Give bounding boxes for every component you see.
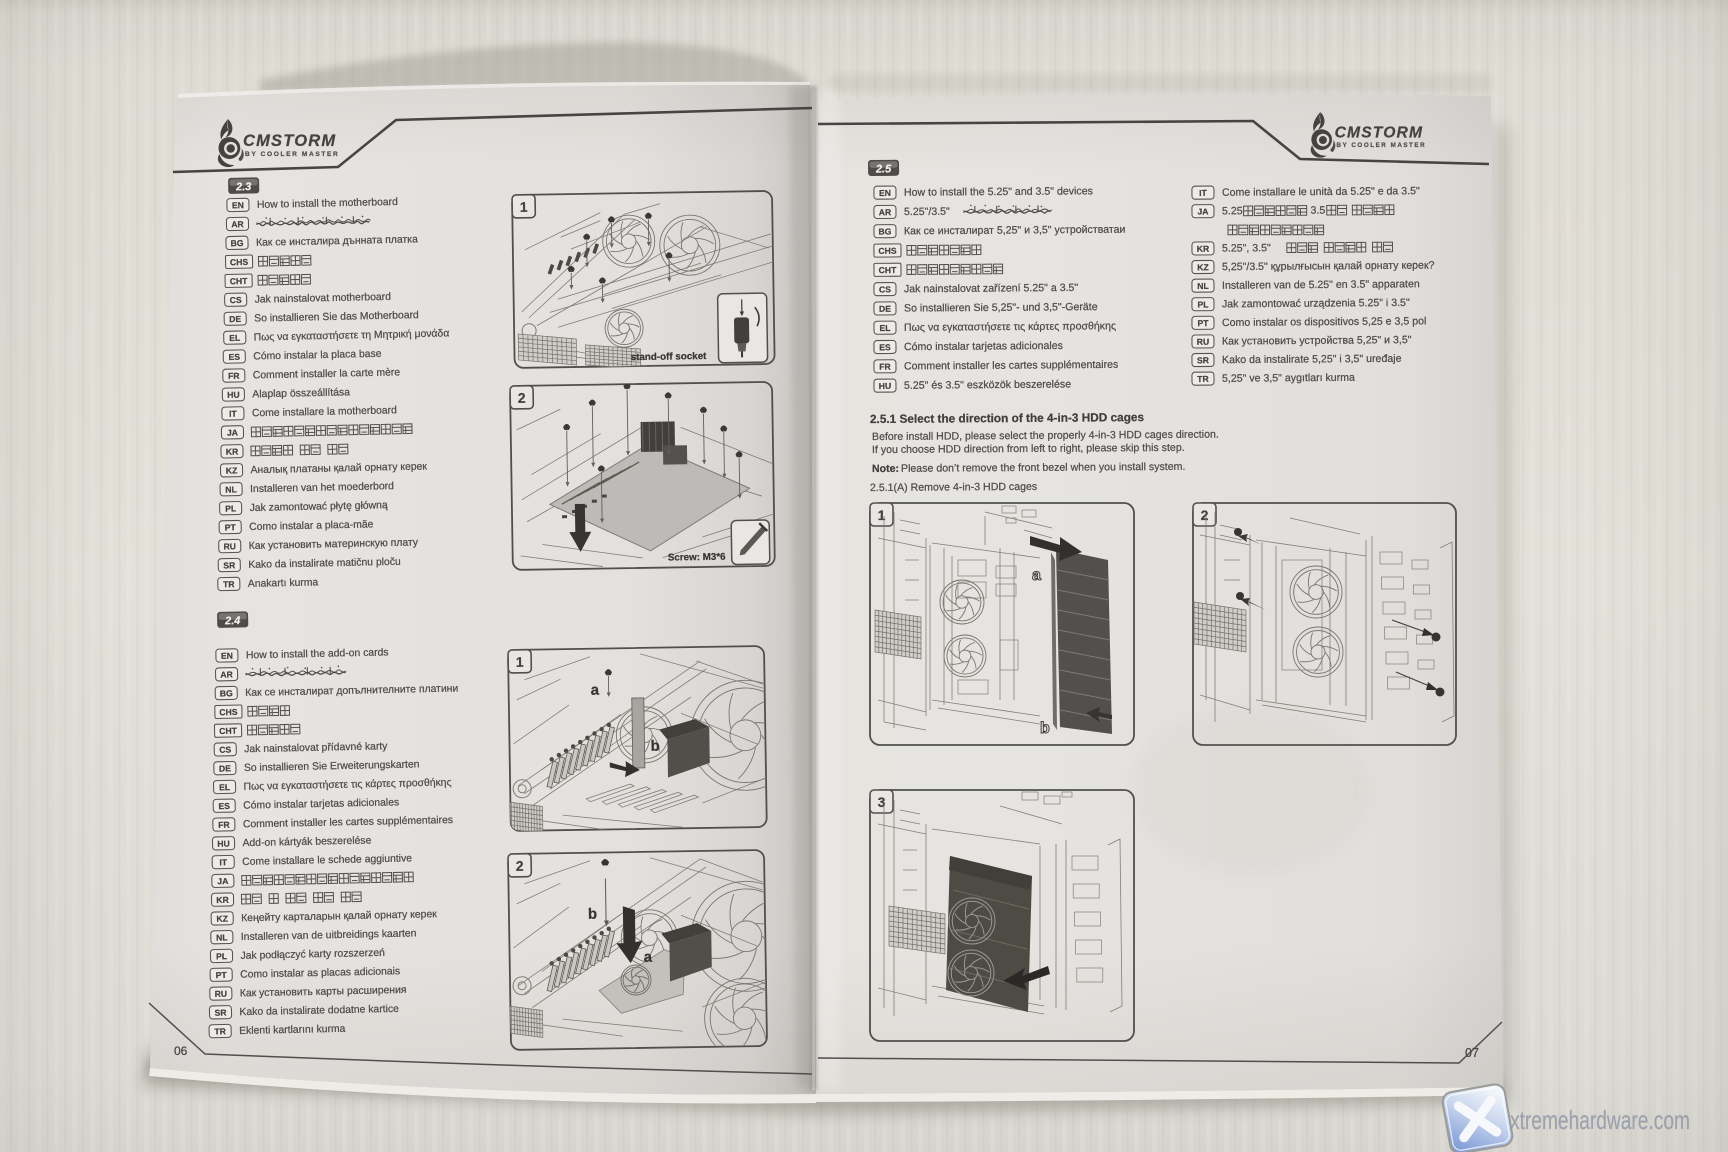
svg-text:xtremehardware.com: xtremehardware.com — [1510, 1105, 1690, 1135]
